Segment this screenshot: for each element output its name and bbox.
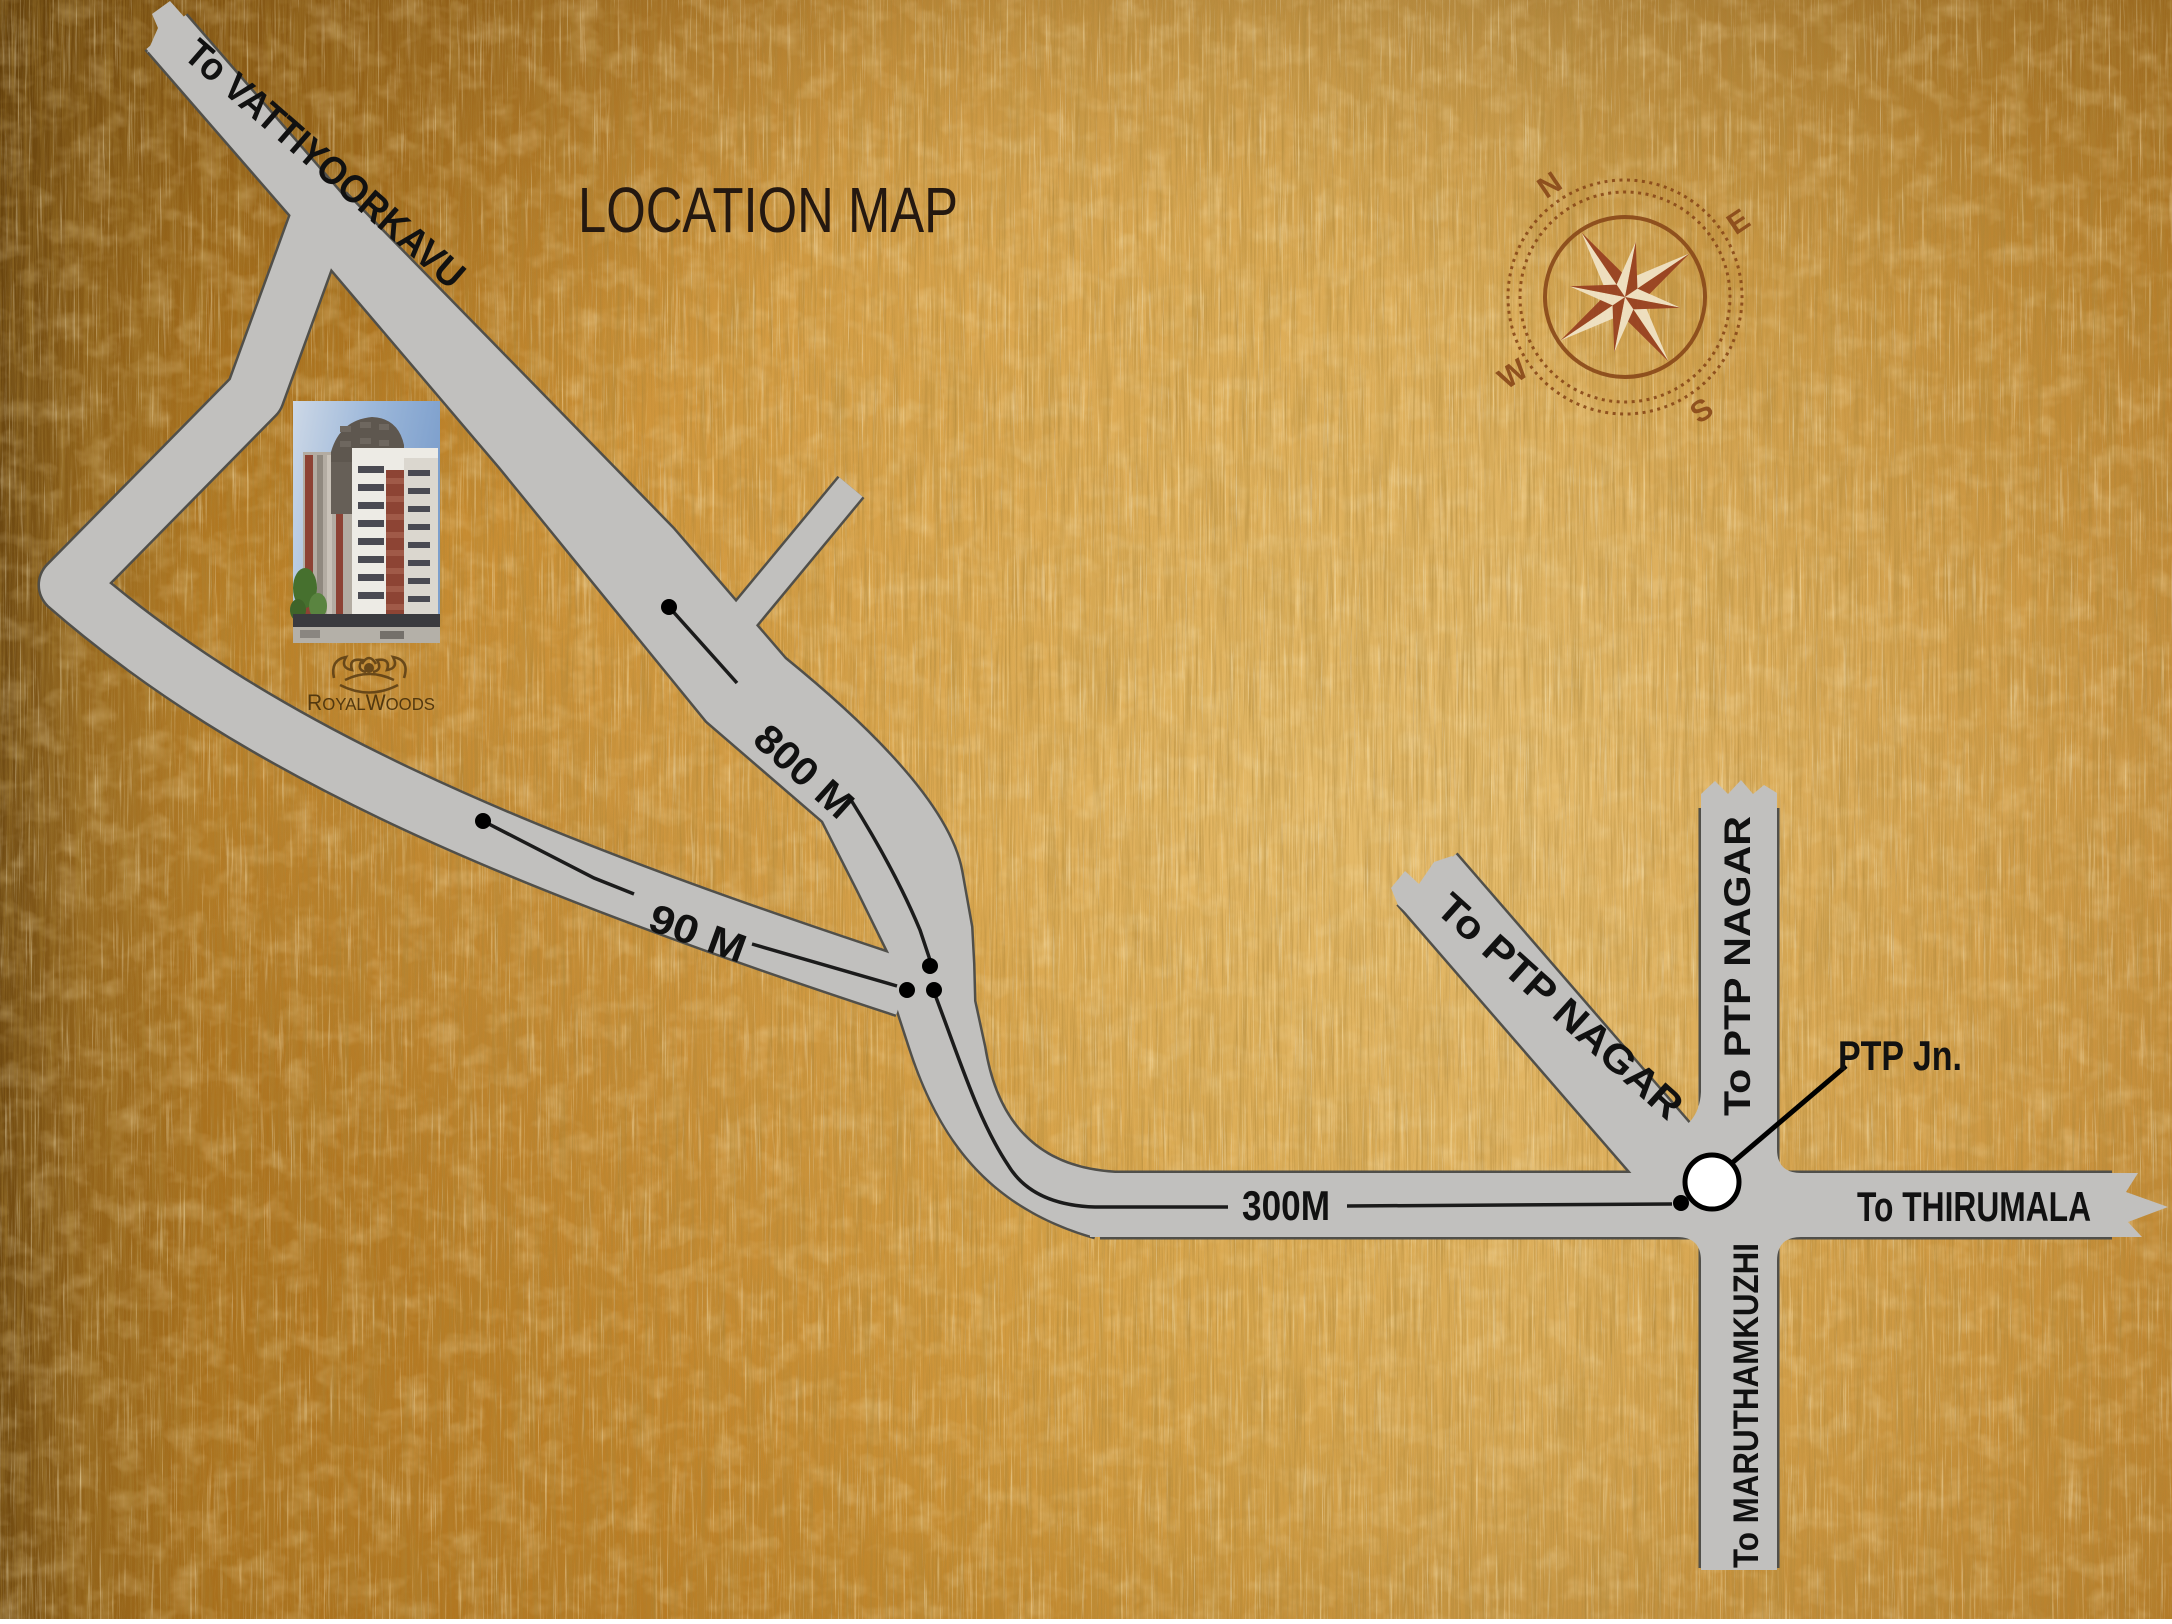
svg-text:To THIRUMALA: To THIRUMALA (1857, 1183, 2091, 1230)
svg-text:To PTP NAGAR: To PTP NAGAR (1717, 816, 1758, 1116)
svg-text:ROYALWOODS: ROYALWOODS (307, 690, 435, 715)
svg-text:LOCATION MAP: LOCATION MAP (578, 174, 958, 246)
svg-text:PTP Jn.: PTP Jn. (1838, 1032, 1962, 1079)
svg-text:300M: 300M (1242, 1182, 1330, 1229)
svg-text:To MARUTHAMKUZHI: To MARUTHAMKUZHI (1727, 1243, 1766, 1568)
